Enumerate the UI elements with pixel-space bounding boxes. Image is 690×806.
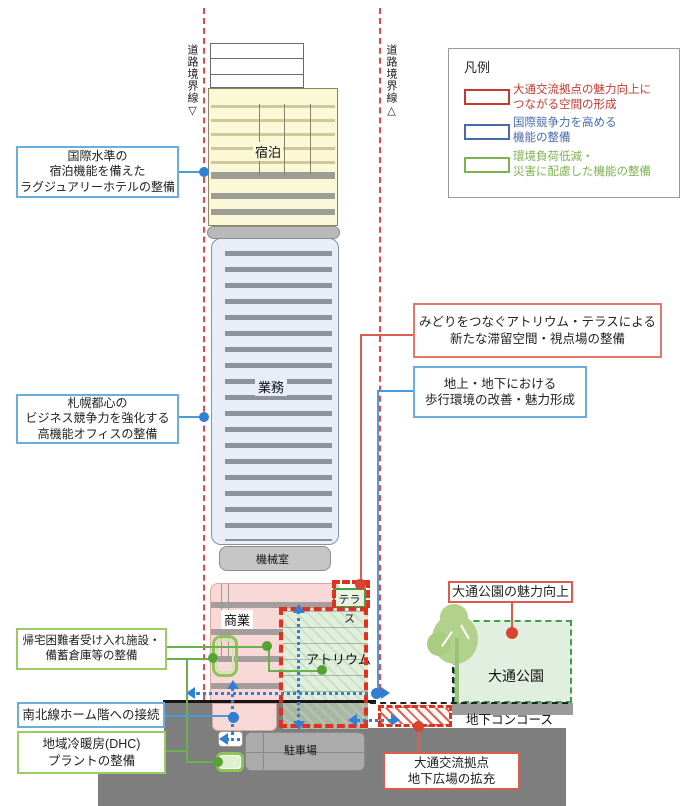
walk-connector-h: [377, 390, 413, 392]
arrowhead-left-icon: [348, 714, 357, 726]
shelter-connector-path-h: [268, 670, 320, 672]
subway-connector: [165, 715, 231, 717]
callout-office: 札幌都心の ビジネス競争力を強化する 高機能オフィスの整備: [16, 394, 179, 444]
legend-swatch-blue: [464, 124, 510, 140]
plaza-connector-dot: [413, 721, 424, 732]
callout-dhc: 地域冷暖房(DHC) プラントの整備: [17, 731, 166, 774]
legend-title: 凡例: [464, 57, 490, 76]
office-label: 業務: [255, 377, 287, 396]
diagram-canvas: 道路境界線▽ 道路境界線△ 宿泊 業務 機械室 商業: [0, 0, 690, 806]
callout-plaza: 大通交流拠点 地下広場の拡充: [383, 752, 520, 790]
arrowhead-up-icon: [293, 604, 305, 613]
penthouse: [210, 43, 304, 88]
shelter-connector-2: [167, 658, 212, 660]
penthouse-floor-line: [211, 58, 303, 59]
penthouse-floor-line: [211, 74, 303, 75]
road-boundary-line-right: [379, 8, 381, 690]
legend-swatch-green: [464, 157, 510, 173]
road-boundary-line-left: [203, 8, 205, 700]
commercial-basement: [212, 703, 277, 731]
hotel-label: 宿泊: [253, 142, 283, 161]
legend-swatch-red: [464, 89, 510, 105]
walk-connector-dot: [371, 688, 382, 699]
callout-hotel: 国際水準の 宿泊機能を備えた ラグジュアリーホテルの整備: [16, 146, 179, 198]
legend-box: 凡例 大通交流拠点の魅力向上に つながる空間の形成 国際競争力を高める 機能の整…: [448, 48, 680, 198]
machine-room-label: 機械室: [256, 551, 289, 567]
subway-connector-dot: [228, 712, 239, 723]
callout-shelter: 帰宅困難者受け入れ施設・ 備蓄倉庫等の整備: [16, 628, 167, 670]
legend-item-green: 環境負荷低減・ 災害に配慮した機能の整備: [513, 150, 651, 180]
commercial-label: 商業: [221, 610, 253, 629]
legend-item-blue: 国際競争力を高める 機能の整備: [513, 116, 617, 146]
terrace-connector-v: [360, 334, 362, 583]
pedestrian-flow-arrow-subway: [231, 687, 234, 735]
shelter-dot-commercial: [262, 641, 272, 651]
road-boundary-label-left: 道路境界線▽: [184, 44, 200, 118]
shelter-dot-storage: [208, 653, 218, 663]
arrowhead-left-icon: [219, 733, 228, 745]
concourse-dashed-line: [370, 702, 568, 704]
terrace-connector-dot: [355, 579, 366, 590]
road-boundary-label-right: 道路境界線△: [383, 44, 399, 118]
callout-park: 大通公園の魅力向上: [448, 581, 573, 603]
dhc-connector-v: [186, 658, 188, 763]
park-connector-v: [511, 602, 513, 630]
hotel-connector-dot: [199, 167, 209, 177]
dhc-connector-dot: [213, 757, 223, 767]
arrowhead-right-icon: [391, 714, 400, 726]
callout-terrace: みどりをつなぐアトリウム・テラスによる 新たな滞留空間・視点場の整備: [413, 303, 662, 358]
pedestrian-flow-arrow-subway-foot: [226, 738, 240, 741]
park-connector-dot: [506, 627, 518, 639]
arrowhead-right-icon: [381, 687, 390, 699]
shelter-connector-1: [167, 646, 267, 648]
terrace-connector-h: [360, 334, 413, 336]
pedestrian-flow-arrow-ground: [196, 692, 376, 695]
office-floor-stripes: [225, 251, 332, 541]
legend-item-red: 大通交流拠点の魅力向上に つながる空間の形成: [513, 83, 651, 113]
parking-label: 駐車場: [284, 742, 317, 758]
office-connector-dot: [199, 412, 209, 422]
callout-subway: 南北線ホーム階への接続: [17, 702, 165, 728]
pedestrian-flow-arrow-concourse: [356, 719, 392, 722]
callout-walk: 地上・地下における 歩行環境の改善・魅力形成: [413, 366, 587, 418]
concourse-label: 地下コンコース: [466, 709, 553, 728]
walk-connector-v: [377, 390, 379, 690]
dhc-connector-h1: [166, 750, 187, 752]
park-label: 大通公園: [488, 666, 544, 686]
arrowhead-up-icon: [227, 680, 239, 689]
pedestrian-flow-arrow-atrium: [297, 611, 300, 723]
shelter-dot-atrium: [317, 665, 327, 675]
underground-mass-bottomleft: [98, 772, 164, 806]
arrowhead-down-icon: [293, 721, 305, 730]
hotel-core-grid: [259, 104, 311, 175]
hotel-office-cap: [207, 226, 340, 239]
